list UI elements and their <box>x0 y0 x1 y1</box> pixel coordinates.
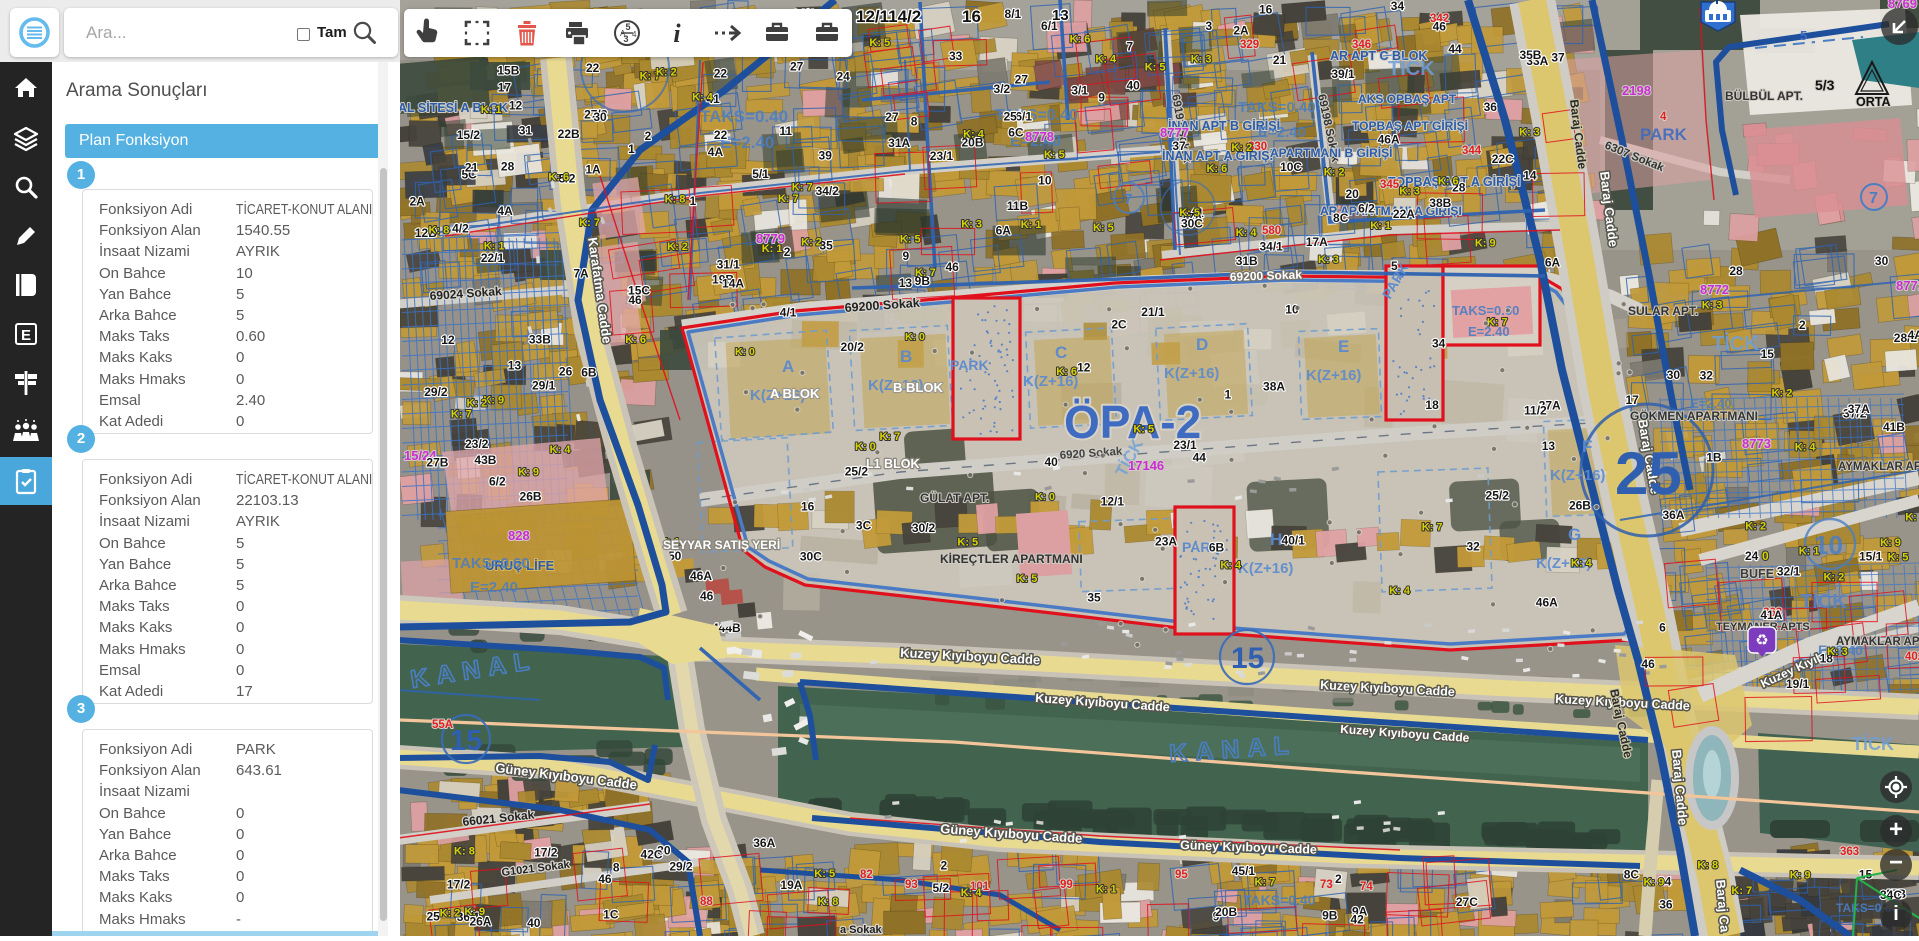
svg-text:K: 1: K: 1 <box>484 241 505 253</box>
svg-text:74: 74 <box>1360 881 1373 893</box>
svg-text:15C: 15C <box>628 283 650 297</box>
svg-text:329: 329 <box>1240 39 1259 51</box>
svg-text:1: 1 <box>628 142 635 156</box>
svg-text:33: 33 <box>949 49 963 63</box>
svg-text:42: 42 <box>1350 913 1364 927</box>
svg-text:A: A <box>782 357 794 376</box>
svg-text:AKS OPBAŞ APT: AKS OPBAŞ APT <box>1358 92 1457 106</box>
svg-text:H: H <box>1270 530 1282 549</box>
svg-text:30/2: 30/2 <box>912 521 936 535</box>
svg-text:9: 9 <box>903 249 910 263</box>
svg-text:K: 9: K: 9 <box>1790 870 1811 882</box>
svg-text:46: 46 <box>1641 657 1655 671</box>
svg-text:45/1: 45/1 <box>1232 864 1256 878</box>
svg-text:K: 8: K: 8 <box>818 896 839 908</box>
svg-text:K: 1: K: 1 <box>1370 220 1391 232</box>
svg-text:6A: 6A <box>996 224 1012 238</box>
svg-text:APARTMANI B GİRİŞİ: APARTMANI B GİRİŞİ <box>1270 145 1392 160</box>
svg-text:8772: 8772 <box>1700 282 1729 297</box>
svg-text:K: 5: K: 5 <box>900 233 921 245</box>
svg-text:K: 3: K: 3 <box>1399 185 1420 197</box>
svg-text:13: 13 <box>508 359 522 373</box>
svg-text:K: 3: K: 3 <box>1318 254 1339 266</box>
svg-text:2: 2 <box>1799 318 1806 332</box>
svg-text:K: 5: K: 5 <box>814 868 835 880</box>
svg-text:4/2: 4/2 <box>452 221 469 235</box>
svg-text:95: 95 <box>1175 869 1188 881</box>
svg-text:22/1: 22/1 <box>481 251 505 265</box>
svg-text:23/1: 23/1 <box>930 149 954 163</box>
svg-text:5/2: 5/2 <box>933 881 950 895</box>
svg-text:K: 3: K: 3 <box>1519 126 1540 138</box>
svg-text:25: 25 <box>1615 440 1682 507</box>
svg-text:BUFE: BUFE <box>1740 567 1774 581</box>
svg-text:2A: 2A <box>1233 23 1249 37</box>
svg-text:♻: ♻ <box>1755 632 1768 649</box>
svg-text:55A: 55A <box>432 719 453 731</box>
svg-text:38B: 38B <box>1429 196 1451 210</box>
svg-text:46A: 46A <box>1378 133 1400 147</box>
svg-text:11/2: 11/2 <box>1524 403 1547 417</box>
svg-text:9: 9 <box>1098 91 1105 105</box>
svg-text:K: 4: K: 4 <box>1571 557 1593 569</box>
svg-text:36: 36 <box>1484 100 1498 114</box>
svg-text:16: 16 <box>801 499 815 513</box>
svg-text:K: 5: K: 5 <box>1133 423 1154 435</box>
svg-text:K: 1: K: 1 <box>1799 545 1820 557</box>
svg-text:9B: 9B <box>1322 908 1338 922</box>
svg-text:27: 27 <box>1015 72 1029 86</box>
svg-text:5: 5 <box>1391 259 1398 273</box>
svg-text:K: 9: K: 9 <box>1475 237 1496 249</box>
svg-text:TAKS=0.40: TAKS=0.40 <box>1243 892 1316 908</box>
svg-text:42C: 42C <box>641 847 663 861</box>
svg-text:3: 3 <box>1205 19 1212 33</box>
svg-text:17: 17 <box>1625 393 1639 407</box>
svg-text:88: 88 <box>700 896 713 908</box>
svg-text:39: 39 <box>819 148 833 162</box>
svg-text:3/1: 3/1 <box>1071 83 1088 97</box>
svg-text:K: 4: K: 4 <box>1236 227 1258 239</box>
svg-text:1B: 1B <box>1706 451 1722 465</box>
svg-text:4A: 4A <box>1908 328 1919 342</box>
svg-text:5: 5 <box>1800 28 1807 43</box>
svg-text:13: 13 <box>1052 7 1069 24</box>
svg-text:402: 402 <box>1905 651 1919 663</box>
svg-text:A BLOK: A BLOK <box>770 386 820 401</box>
svg-text:K: 2: K: 2 <box>1231 142 1252 154</box>
svg-text:10: 10 <box>1038 174 1052 188</box>
svg-text:44: 44 <box>1193 450 1207 464</box>
svg-text:AYMAKLAR AP: AYMAKLAR AP <box>1838 461 1919 473</box>
svg-text:15/2: 15/2 <box>457 128 481 142</box>
svg-text:17: 17 <box>498 81 512 95</box>
svg-text:6A: 6A <box>1545 256 1561 270</box>
svg-text:27C: 27C <box>1456 895 1478 909</box>
svg-text:5/1: 5/1 <box>752 167 769 181</box>
svg-text:K: 0: K: 0 <box>735 346 755 358</box>
svg-text:13: 13 <box>1542 439 1556 453</box>
svg-text:8/1: 8/1 <box>1005 7 1022 21</box>
svg-text:31/1: 31/1 <box>717 257 741 271</box>
svg-text:580: 580 <box>1262 225 1281 237</box>
svg-text:1C: 1C <box>603 907 619 921</box>
svg-text:35: 35 <box>1087 591 1101 605</box>
svg-text:93: 93 <box>905 879 918 891</box>
svg-text:46A: 46A <box>1536 596 1558 610</box>
svg-text:TAKS=0.40: TAKS=0.40 <box>1238 99 1316 116</box>
svg-text:345: 345 <box>1380 179 1400 191</box>
svg-text:K: 6: K: 6 <box>1056 366 1077 378</box>
svg-text:B: B <box>900 347 912 366</box>
svg-text:26: 26 <box>559 364 573 378</box>
svg-text:F: F <box>1582 437 1592 456</box>
svg-text:2C: 2C <box>1111 317 1127 331</box>
svg-text:K: 7: K: 7 <box>879 431 900 443</box>
svg-text:K(Z+16): K(Z+16) <box>1238 560 1293 577</box>
svg-text:K: 8: K: 8 <box>454 845 475 857</box>
svg-text:23A: 23A <box>1155 535 1177 549</box>
svg-text:40/1: 40/1 <box>1282 533 1306 547</box>
svg-text:K: 3: K: 3 <box>1191 53 1212 65</box>
svg-text:25: 25 <box>1004 110 1018 124</box>
svg-text:27: 27 <box>885 110 899 124</box>
svg-text:34/2: 34/2 <box>816 184 840 198</box>
svg-text:2198: 2198 <box>1622 83 1651 98</box>
svg-text:344: 344 <box>1462 145 1482 157</box>
svg-text:99: 99 <box>1060 879 1073 891</box>
svg-text:D: D <box>1196 335 1208 354</box>
svg-text:5: 5 <box>625 22 630 32</box>
svg-text:K: 4: K: 4 <box>692 91 714 103</box>
svg-text:12: 12 <box>441 333 455 347</box>
svg-text:PARK: PARK <box>950 357 989 373</box>
svg-text:K(Z+16): K(Z+16) <box>1164 365 1219 382</box>
svg-text:4A: 4A <box>497 204 513 218</box>
svg-text:16: 16 <box>1259 2 1273 16</box>
svg-text:37: 37 <box>1551 51 1565 65</box>
svg-text:21/1: 21/1 <box>1141 305 1165 319</box>
svg-text:38A: 38A <box>1263 379 1285 393</box>
svg-text:E=2.40: E=2.40 <box>470 579 518 596</box>
svg-text:E: E <box>1338 337 1349 356</box>
svg-text:K: 2: K: 2 <box>1745 520 1766 532</box>
svg-text:K: 9: K: 9 <box>518 467 539 479</box>
svg-text:K: 9: K: 9 <box>464 906 485 918</box>
svg-text:22: 22 <box>714 128 728 142</box>
svg-text:K: 4: K: 4 <box>550 444 572 456</box>
svg-text:K: 9: K: 9 <box>1643 876 1664 888</box>
svg-text:35B: 35B <box>1519 48 1541 62</box>
svg-text:46: 46 <box>946 260 960 274</box>
svg-text:KİREÇTLER APARTMANI: KİREÇTLER APARTMANI <box>940 551 1083 566</box>
svg-text:K: 5: K: 5 <box>1888 551 1909 563</box>
svg-text:1A: 1A <box>585 162 601 176</box>
svg-text:K: 5: K: 5 <box>957 537 978 549</box>
svg-text:TOPBAŞ APT GİRİŞİ: TOPBAŞ APT GİRİŞİ <box>1352 118 1468 133</box>
svg-text:12/114/2: 12/114/2 <box>856 7 921 26</box>
svg-text:30: 30 <box>1667 368 1681 382</box>
svg-text:a Sokak: a Sokak <box>840 924 882 936</box>
svg-text:2A: 2A <box>409 195 425 209</box>
svg-text:4: 4 <box>632 30 637 39</box>
svg-text:K: 7: K: 7 <box>1731 885 1752 897</box>
svg-text:E=2.40: E=2.40 <box>1258 124 1306 141</box>
svg-text:21: 21 <box>1273 53 1287 67</box>
svg-text:SEYYAR SATIŞ YERİ: SEYYAR SATIŞ YERİ <box>663 537 780 552</box>
svg-text:11B: 11B <box>1007 199 1029 213</box>
svg-text:17A: 17A <box>1306 235 1328 249</box>
svg-text:18: 18 <box>1425 398 1439 412</box>
svg-text:40: 40 <box>1044 455 1058 469</box>
svg-text:2: 2 <box>940 858 947 872</box>
svg-text:BÜLBÜL APT.: BÜLBÜL APT. <box>1725 88 1803 103</box>
svg-text:41B: 41B <box>1883 420 1905 434</box>
svg-text:36: 36 <box>1659 897 1673 911</box>
svg-text:29/2: 29/2 <box>424 385 448 399</box>
svg-text:27: 27 <box>790 59 804 73</box>
svg-text:4/1: 4/1 <box>780 305 797 319</box>
svg-text:346: 346 <box>1352 39 1371 51</box>
svg-text:TİCK: TİCK <box>1712 332 1759 355</box>
svg-text:6/2: 6/2 <box>1358 201 1375 215</box>
svg-text:K: 2: K: 2 <box>656 66 677 78</box>
svg-text:6B: 6B <box>581 366 597 380</box>
svg-text:K: 4: K: 4 <box>1220 559 1242 571</box>
svg-text:K: 0: K: 0 <box>855 441 876 453</box>
svg-text:K: 7: K: 7 <box>579 217 600 229</box>
svg-text:K: 1: K: 1 <box>1021 219 1042 231</box>
svg-text:46A: 46A <box>690 569 712 583</box>
svg-text:8C: 8C <box>1333 211 1349 225</box>
svg-text:K: 5: K: 5 <box>1044 149 1065 161</box>
svg-text:K: 2: K: 2 <box>667 241 688 253</box>
svg-text:K(Z+16): K(Z+16) <box>1550 467 1605 484</box>
svg-text:41A: 41A <box>1760 608 1782 622</box>
svg-text:C: C <box>1055 343 1067 362</box>
svg-text:22: 22 <box>586 61 600 75</box>
svg-text:K: 1: K: 1 <box>762 243 783 255</box>
svg-text:32/1: 32/1 <box>1777 564 1801 578</box>
svg-text:8771: 8771 <box>1896 278 1919 293</box>
svg-text:37: 37 <box>1172 139 1186 153</box>
svg-text:K: 6: K: 6 <box>548 172 569 184</box>
svg-text:36A: 36A <box>1662 508 1684 522</box>
svg-text:AYMAKLAR AP: AYMAKLAR AP <box>1836 636 1919 648</box>
svg-text:33B: 33B <box>529 333 551 347</box>
svg-text:K: 8: K: 8 <box>429 225 450 237</box>
svg-text:K: 3: K: 3 <box>961 219 982 231</box>
svg-text:34/1: 34/1 <box>1260 240 1284 254</box>
svg-text:E: E <box>21 327 31 344</box>
svg-text:5/3: 5/3 <box>1815 77 1835 93</box>
svg-text:39/1: 39/1 <box>1331 67 1355 81</box>
svg-text:8778: 8778 <box>1025 129 1054 144</box>
svg-text:K: 2: K: 2 <box>1324 167 1345 179</box>
svg-text:8: 8 <box>613 861 620 875</box>
svg-text:1: 1 <box>689 194 696 208</box>
svg-text:32: 32 <box>1466 540 1480 554</box>
svg-text:K: 4: K: 4 <box>1389 585 1411 597</box>
svg-text:G: G <box>1568 525 1581 544</box>
svg-text:K: 7: K: 7 <box>451 409 472 421</box>
svg-text:K: 1: K: 1 <box>481 104 502 116</box>
svg-text:L1 BLOK: L1 BLOK <box>866 457 919 471</box>
svg-text:24: 24 <box>1745 549 1759 563</box>
svg-text:11: 11 <box>779 124 792 138</box>
svg-text:7: 7 <box>1126 39 1133 53</box>
svg-text:31: 31 <box>519 123 533 137</box>
svg-text:SULAR APT.: SULAR APT. <box>1628 304 1698 318</box>
svg-text:34: 34 <box>1432 336 1446 350</box>
svg-text:K: 2: K: 2 <box>801 237 822 249</box>
svg-text:8C: 8C <box>1624 867 1640 881</box>
svg-text:PARK: PARK <box>1640 125 1688 144</box>
svg-text:K: 5: K: 5 <box>1145 61 1166 73</box>
svg-text:3/2: 3/2 <box>994 82 1011 96</box>
svg-text:A: A <box>620 29 626 38</box>
svg-text:1: 1 <box>1225 388 1232 402</box>
svg-text:828: 828 <box>508 528 530 543</box>
svg-text:28: 28 <box>501 159 515 173</box>
svg-text:K: 1: K: 1 <box>1096 884 1117 896</box>
svg-text:14: 14 <box>1523 168 1537 182</box>
svg-text:27B: 27B <box>426 456 448 470</box>
svg-text:K: 7: K: 7 <box>1422 522 1443 534</box>
svg-text:12: 12 <box>509 98 523 112</box>
svg-text:21: 21 <box>465 160 479 174</box>
svg-text:24: 24 <box>836 69 850 83</box>
svg-text:7A: 7A <box>573 267 589 281</box>
svg-text:14A: 14A <box>722 277 744 291</box>
svg-text:40: 40 <box>1126 79 1140 93</box>
svg-text:30C: 30C <box>800 549 822 563</box>
svg-text:20B: 20B <box>1215 905 1237 919</box>
svg-text:K: 3: K: 3 <box>1702 299 1723 311</box>
svg-text:K: 8: K: 8 <box>665 194 686 206</box>
svg-text:K: 7: K: 7 <box>792 182 813 194</box>
svg-text:32: 32 <box>1700 368 1714 382</box>
svg-text:K(Z+16): K(Z+16) <box>1306 367 1361 384</box>
svg-text:K: 0: K: 0 <box>1035 491 1055 503</box>
svg-text:K: 4: K: 4 <box>961 887 983 899</box>
svg-text:6C: 6C <box>1008 125 1024 139</box>
svg-text:TAKS=0.60: TAKS=0.60 <box>452 555 530 572</box>
svg-text:GÜLAT APT.: GÜLAT APT. <box>920 490 989 505</box>
svg-text:26B: 26B <box>1569 499 1591 513</box>
svg-text:34: 34 <box>1391 0 1405 13</box>
svg-text:17146: 17146 <box>1128 458 1164 473</box>
svg-text:22: 22 <box>714 66 728 80</box>
svg-text:TİCK: TİCK <box>1388 57 1435 80</box>
svg-text:17/2: 17/2 <box>447 878 471 892</box>
svg-text:15B: 15B <box>497 64 519 78</box>
svg-text:K: 2: K: 2 <box>440 907 461 919</box>
svg-text:37A: 37A <box>1848 402 1870 416</box>
svg-text:K: 7: K: 7 <box>915 267 936 279</box>
svg-text:10C: 10C <box>1280 160 1302 174</box>
svg-text:K: 5: K: 5 <box>1093 222 1114 234</box>
svg-text:20: 20 <box>1345 187 1359 201</box>
svg-text:31A: 31A <box>888 136 910 150</box>
svg-text:29/1: 29/1 <box>532 379 556 393</box>
svg-text:E=2.40: E=2.40 <box>720 133 774 152</box>
svg-text:B BLOK: B BLOK <box>893 380 943 395</box>
svg-text:2: 2 <box>645 129 652 143</box>
svg-text:K: 6: K: 6 <box>625 334 646 346</box>
svg-text:K: 4: K: 4 <box>1095 54 1117 66</box>
svg-text:25/2: 25/2 <box>845 464 869 478</box>
svg-text:K: 5: K: 5 <box>1179 207 1200 219</box>
svg-text:28: 28 <box>1729 264 1743 278</box>
svg-text:15: 15 <box>1231 642 1264 675</box>
svg-text:40: 40 <box>527 916 541 930</box>
svg-text:K: 2: K: 2 <box>1772 387 1793 399</box>
svg-text:K: 0: K: 0 <box>905 331 925 343</box>
svg-text:K: 4: K: 4 <box>963 129 985 141</box>
svg-text:K: 2: K: 2 <box>1823 572 1844 584</box>
svg-text:73: 73 <box>1320 879 1333 891</box>
svg-text:30: 30 <box>593 110 607 124</box>
svg-text:17/2: 17/2 <box>534 845 558 859</box>
svg-text:36A: 36A <box>753 836 775 850</box>
svg-text:8773: 8773 <box>1742 436 1771 451</box>
svg-text:15: 15 <box>450 725 482 757</box>
svg-text:7: 7 <box>1869 190 1878 207</box>
svg-text:26B: 26B <box>520 489 542 503</box>
svg-text:K: 5: K: 5 <box>869 37 890 49</box>
svg-text:K: 9: K: 9 <box>1905 512 1919 524</box>
svg-text:22A: 22A <box>1393 207 1415 221</box>
svg-text:46: 46 <box>700 589 714 603</box>
svg-text:E=2.40: E=2.40 <box>1690 396 1732 411</box>
svg-text:K: 7: K: 7 <box>1487 316 1508 328</box>
svg-text:K: 6: K: 6 <box>1438 175 1459 187</box>
svg-text:43B: 43B <box>474 453 496 467</box>
svg-text:25: 25 <box>426 909 440 923</box>
svg-text:8777: 8777 <box>1160 125 1189 140</box>
svg-text:7: 7 <box>1124 191 1132 208</box>
svg-text:15: 15 <box>1761 347 1775 361</box>
svg-text:30: 30 <box>1875 254 1889 268</box>
svg-text:K: 7: K: 7 <box>1255 876 1276 888</box>
svg-text:K: 4: K: 4 <box>1795 442 1817 454</box>
svg-text:6: 6 <box>1659 621 1666 635</box>
svg-text:K: 3: K: 3 <box>1827 646 1848 658</box>
svg-text:K: 6: K: 6 <box>1070 33 1091 45</box>
svg-text:46: 46 <box>1433 20 1447 34</box>
svg-text:12/1: 12/1 <box>1101 495 1125 509</box>
svg-text:K: 9: K: 9 <box>1880 537 1901 549</box>
svg-text:TAKS=0.40: TAKS=0.40 <box>700 107 788 126</box>
svg-text:20/2: 20/2 <box>841 340 865 354</box>
svg-text:22C: 22C <box>1492 152 1514 166</box>
svg-text:23/2: 23/2 <box>465 437 489 451</box>
svg-text:K: 5: K: 5 <box>1017 573 1038 585</box>
svg-text:19A: 19A <box>780 878 802 892</box>
svg-text:22B: 22B <box>558 127 580 141</box>
svg-text:i: i <box>673 19 681 48</box>
svg-text:69200 Sokak: 69200 Sokak <box>1230 267 1303 284</box>
svg-text:13: 13 <box>899 276 913 290</box>
svg-text:TİCK: TİCK <box>1852 734 1894 754</box>
svg-text:16: 16 <box>962 7 981 26</box>
svg-text:4: 4 <box>1660 111 1667 123</box>
svg-text:K: 6: K: 6 <box>1206 163 1227 175</box>
svg-text:TİCK: TİCK <box>1800 590 1847 613</box>
svg-text:K: 8: K: 8 <box>1697 860 1718 872</box>
svg-text:82: 82 <box>860 869 873 881</box>
